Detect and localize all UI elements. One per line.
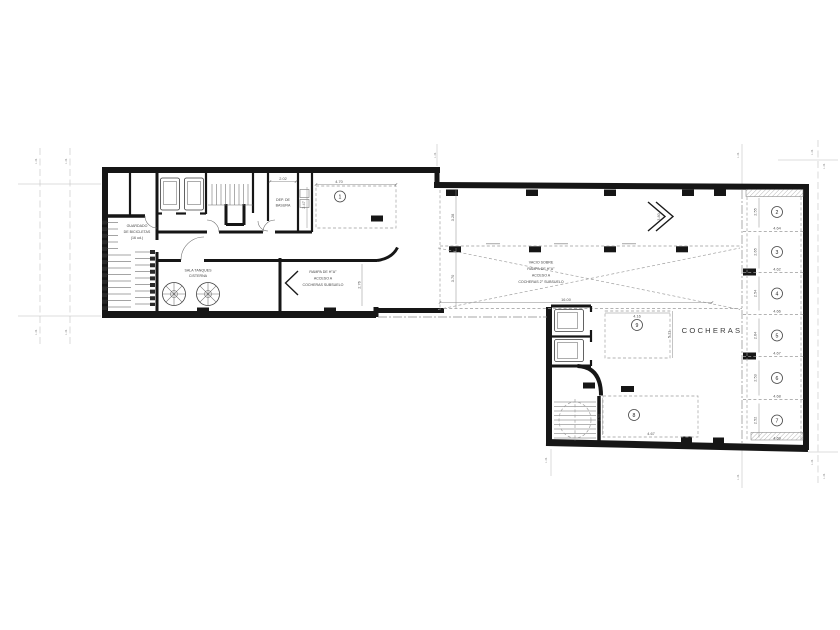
- dim-trash-width: 2.02: [279, 176, 287, 181]
- label-void-line1: VACIO SOBRE: [529, 261, 554, 265]
- label-trash-line1: DEP. DE: [276, 198, 291, 202]
- label-void-line4: COCHERAS 2° SUBSUELO: [518, 280, 564, 284]
- space-4-number: 4: [776, 291, 779, 297]
- marker-lm: L.M.: [822, 473, 826, 479]
- drawing-sheet: L.M. L.M. L.M. L.M. L.M. L.M. L.M. L.M. …: [0, 0, 840, 630]
- dim-space-3-height: 2.65: [753, 248, 758, 256]
- water-tank-icon: [163, 283, 186, 306]
- label-ramp-line3: COCHERAS SUBSUELO: [303, 283, 344, 287]
- dim-space-1-height: 2.47: [301, 201, 306, 209]
- space-3-number: 3: [776, 250, 779, 256]
- dim-space-7-width: 4.69: [773, 435, 781, 440]
- label-bike-line1: GUARDADO: [127, 224, 148, 228]
- marker-lm: L.M.: [810, 459, 814, 465]
- marker-lm: L.M.: [822, 163, 826, 169]
- dim-space-6-height: 2.53: [753, 374, 758, 382]
- dim-space-6-width: 4.68: [773, 394, 781, 399]
- floor-plan-canvas: L.M. L.M. L.M. L.M. L.M. L.M. L.M. L.M. …: [0, 0, 840, 630]
- label-tanks-line1: SALA TANQUES: [184, 269, 212, 273]
- label-garage: COCHERAS: [682, 326, 743, 335]
- dim-space-8-height: 2.50: [597, 413, 602, 421]
- dim-space-8-width: 4.67: [647, 431, 655, 436]
- dim-space-2-width: 4.64: [773, 226, 781, 231]
- marker-lm: L.M.: [34, 158, 38, 164]
- dim-ramp-width: 2.76: [357, 281, 362, 289]
- label-tanks-line2: CISTERNA: [189, 274, 208, 278]
- dim-space-9-width: 4.16: [633, 314, 641, 319]
- water-tank-icon: [197, 283, 220, 306]
- dim-ramp2-width: 3.80: [656, 212, 661, 220]
- marker-lm: L.M.: [736, 474, 740, 480]
- marker-lm: L.M.: [736, 152, 740, 158]
- dim-space-1-width: 4.70: [335, 179, 343, 184]
- label-trash-line2: BASURA: [276, 204, 291, 208]
- dim-space-5-height: 2.64: [753, 331, 758, 339]
- marker-lm: L.M.: [34, 329, 38, 335]
- dim-space-4-width: 4.66: [773, 309, 781, 314]
- label-ramp-line1: RAMPA DE H°A°: [309, 270, 337, 274]
- dim-space-2-height: 2.55: [753, 208, 758, 216]
- label-bike-line3: (16 ud.): [131, 236, 143, 240]
- marker-lm: L.M.: [64, 329, 68, 335]
- label-void-line2: RAMPA DE H°A°: [527, 267, 555, 271]
- marker-lm: L.M.: [64, 158, 68, 164]
- marker-lm: L.M.: [810, 149, 814, 155]
- label-bike-line2: DE BICICLETAS: [124, 230, 151, 234]
- dim-upper-band: 3.28: [450, 214, 455, 222]
- marker-lm: L.M.: [433, 152, 437, 158]
- space-1-number: 1: [339, 194, 342, 200]
- dim-space-4-height: 2.54: [753, 289, 758, 297]
- label-ramp-line2: ACCESO A: [314, 277, 333, 281]
- dim-space-3-width: 4.62: [773, 267, 781, 272]
- dim-space-9-depth: 5.11: [667, 331, 672, 338]
- dim-lower-band: 3.70: [450, 274, 455, 282]
- space-6-number: 6: [776, 376, 779, 382]
- space-8-number: 8: [633, 413, 636, 419]
- space-7-number: 7: [776, 418, 779, 424]
- dim-ramp-length: 16.00: [561, 297, 572, 302]
- dim-space-7-height: 2.52: [753, 417, 758, 425]
- space-2-number: 2: [776, 210, 779, 216]
- dim-space-5-width: 4.67: [773, 351, 781, 356]
- label-void-line3: ACCESO A: [532, 274, 551, 278]
- marker-lm: L.M.: [544, 457, 548, 463]
- space-5-number: 5: [776, 333, 779, 339]
- space-9-number: 9: [636, 323, 639, 329]
